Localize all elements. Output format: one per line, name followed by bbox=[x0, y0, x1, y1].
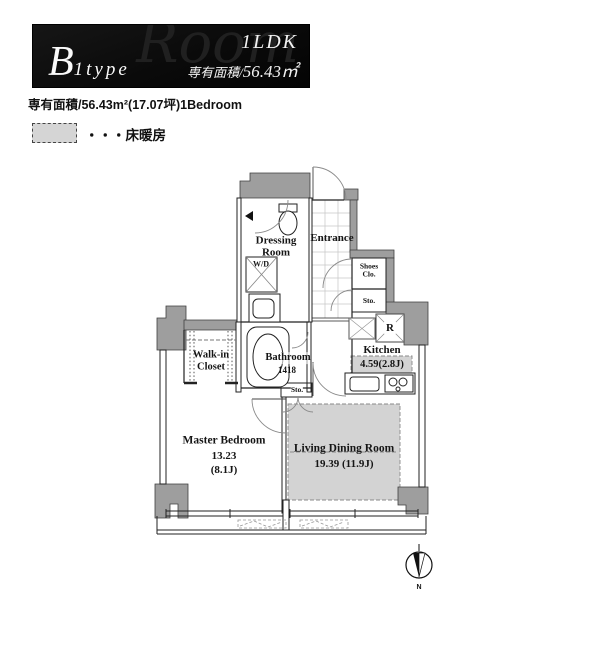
label-walkin-line1: Walk-in bbox=[193, 349, 229, 361]
kitchen-sink bbox=[350, 377, 379, 391]
entrance-tile-grid bbox=[312, 200, 352, 318]
label-kitchen-size: 4.59(2.8J) bbox=[360, 359, 404, 371]
label-living-dining: Living Dining Room bbox=[294, 443, 394, 456]
label-master-bedroom: Master Bedroom bbox=[183, 435, 266, 448]
label-shoes-closet: Shoes Clo. bbox=[360, 263, 378, 280]
label-washer-dryer: W/D bbox=[253, 261, 269, 270]
label-living-dining-size: 19.39 (11.9J) bbox=[315, 458, 374, 470]
label-master-bedroom-size: 13.23 bbox=[212, 450, 237, 462]
label-dressing-room: Dressing Room bbox=[256, 235, 297, 260]
label-storage-upper: Sto. bbox=[363, 297, 375, 305]
stove-burner-small bbox=[396, 387, 400, 391]
floor-plan-drawing bbox=[0, 0, 600, 650]
stove-burner bbox=[389, 378, 397, 386]
label-dressing-line1: Dressing bbox=[256, 235, 297, 247]
label-entrance: Entrance bbox=[310, 232, 353, 244]
toilet-bowl bbox=[279, 211, 297, 235]
balcony-panels bbox=[238, 520, 348, 528]
label-kitchen: Kitchen bbox=[363, 344, 400, 356]
balcony-windows bbox=[157, 509, 426, 534]
floorplan-page: { "header": { "type_initial": "B", "type… bbox=[0, 0, 600, 650]
label-master-bedroom-jo: (8.1J) bbox=[211, 464, 238, 476]
label-bathroom: Bathroom bbox=[265, 352, 310, 364]
label-storage-small: Sto. bbox=[291, 386, 303, 394]
door-direction-marker bbox=[245, 211, 253, 221]
label-refrigerator: R bbox=[384, 322, 396, 334]
washbasin-bowl bbox=[253, 299, 274, 318]
label-walkin-line2: Closet bbox=[193, 361, 229, 373]
label-compass-north: N bbox=[416, 584, 421, 592]
label-dressing-line2: Room bbox=[256, 247, 297, 259]
label-bathroom-size: 1418 bbox=[278, 365, 296, 375]
compass-icon bbox=[406, 544, 432, 578]
label-walkin-closet: Walk-in Closet bbox=[193, 349, 229, 373]
stove-burner bbox=[399, 378, 407, 386]
label-shoes-line2: Clo. bbox=[360, 271, 378, 279]
